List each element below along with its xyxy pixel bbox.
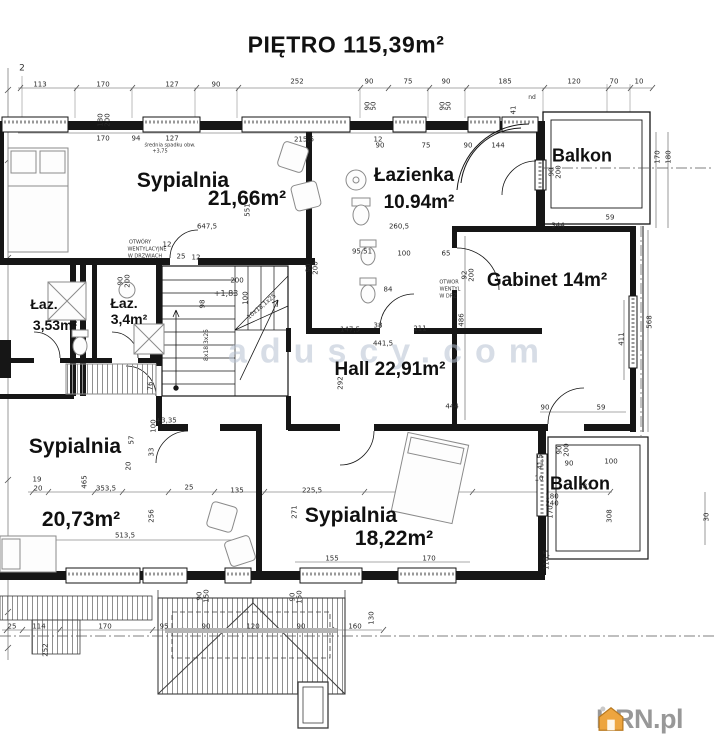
- annotation-label-0: 2: [19, 65, 25, 74]
- dimension-label-9: 120: [567, 79, 580, 86]
- dimension-label-67: 33: [149, 448, 156, 457]
- dimension-label-71: 465: [82, 475, 89, 488]
- bidet: [360, 278, 376, 303]
- toilet: [352, 198, 370, 225]
- annotation-label-8: OTWOR: [439, 281, 458, 286]
- dimension-label-107: 252: [43, 643, 50, 656]
- dimension-label-14: 127: [165, 136, 178, 143]
- dimension-label-62: 444: [445, 404, 458, 411]
- dimension-label-10: 70: [610, 79, 619, 86]
- dimension-label-99: 114: [32, 624, 45, 631]
- dimension-label-75: 225,5: [302, 488, 322, 495]
- dimension-label-72: 353,5: [96, 486, 116, 493]
- dimension-label-41: 12: [192, 255, 201, 262]
- dimension-label-76: 381: [578, 484, 591, 491]
- dimension-label-35: 411: [619, 332, 626, 345]
- dimension-label-80: 90: [565, 461, 574, 468]
- dimension-label-15: 215,5: [294, 137, 314, 144]
- room-label-laz-1-area: 3,53m²: [33, 317, 77, 333]
- annotation-label-5: W DRZWIACH: [128, 255, 162, 260]
- dimension-label-98: 25: [8, 624, 17, 631]
- annotation-label-3: OTWÓRY: [129, 241, 151, 246]
- dimension-label-74: 135: [230, 488, 243, 495]
- dimension-label-68: 20: [126, 462, 133, 471]
- dimension-label-17: 90: [376, 143, 385, 150]
- dimension-label-102: 90: [202, 624, 211, 631]
- dimension-label-106: 130: [369, 611, 376, 624]
- dimension-label-4: 252: [290, 79, 303, 86]
- dimension-label-40: 25: [177, 254, 186, 261]
- dimension-label-2: 127: [165, 82, 178, 89]
- toilet: [72, 330, 88, 355]
- dimension-label-49: 95.51: [352, 249, 372, 256]
- dimension-label-104: 90: [297, 624, 306, 631]
- window: [143, 568, 187, 583]
- room-label-hall: Hall 22,91m²: [335, 359, 446, 381]
- dimension-label-70: 20: [34, 486, 43, 493]
- dimension-label-54: 84: [384, 287, 393, 294]
- dimension-label-5: 90: [365, 79, 374, 86]
- annotation-label-2: +3,75: [152, 150, 167, 155]
- room-label-lazienka: Łazienka: [374, 165, 454, 187]
- room-label-sypialnia-2: Sypialnia: [29, 435, 121, 459]
- dimension-label-51: 65: [442, 251, 451, 258]
- stairwell: [162, 266, 288, 396]
- dimension-label-90: 513,5: [115, 533, 135, 540]
- dimension-label-82: 10: [535, 476, 544, 483]
- dimension-label-36: 486: [459, 313, 466, 326]
- dimension-label-32: 344: [551, 223, 564, 230]
- armchair: [206, 501, 238, 533]
- room-label-balkon-1: Balkon: [552, 146, 612, 167]
- room-label-sypialnia-3: Sypialnia: [305, 504, 397, 528]
- dimension-label-55: 38: [374, 323, 383, 330]
- window: [2, 117, 68, 132]
- dimension-label-28: 170: [655, 150, 662, 163]
- dimension-label-22: 200: [105, 113, 112, 126]
- dimension-label-92: 170: [422, 556, 435, 563]
- window: [300, 568, 362, 583]
- dimension-label-38: 551: [245, 203, 252, 216]
- dimension-label-0: 113: [33, 82, 46, 89]
- room-label-laz-1: Łaz.: [30, 296, 57, 312]
- floorplan-canvas: aduscy.com PIĘTRO 115,39m² Sypialnia21,6…: [0, 0, 717, 750]
- krn-logo: KRN.pl: [596, 704, 683, 735]
- window: [143, 117, 200, 132]
- dimension-label-66: 57: [129, 436, 136, 445]
- dimension-label-61: 292: [338, 376, 345, 389]
- dimension-label-78: 271: [292, 505, 299, 518]
- room-label-gabinet: Gabinet 14m²: [487, 270, 607, 292]
- dimension-label-91: 155: [325, 556, 338, 563]
- dimension-label-101: 95: [160, 624, 169, 631]
- dimension-label-81: 100: [604, 459, 617, 466]
- dimension-label-59: 147,5: [340, 327, 360, 334]
- armchair: [224, 535, 257, 568]
- window: [66, 568, 140, 583]
- dimension-label-33: 59: [606, 215, 615, 222]
- dimension-label-100: 170: [98, 624, 111, 631]
- dimension-label-20: 144: [491, 143, 504, 150]
- dimension-label-86: 308: [607, 509, 614, 522]
- dimension-label-63: 90: [541, 405, 550, 412]
- dimension-label-77: 256: [149, 509, 156, 522]
- annotation-label-13: nd: [528, 95, 536, 101]
- dimension-label-6: 75: [404, 79, 413, 86]
- annotation-label-7: +3,35: [155, 418, 176, 425]
- dimension-label-85: 170: [548, 505, 555, 518]
- dimension-label-93: 118,5: [544, 550, 551, 570]
- room-label-laz-2-area: 3,4m²: [111, 311, 148, 327]
- dimension-label-58: 200: [313, 261, 320, 274]
- dimension-label-64: 59: [597, 405, 606, 412]
- dimension-label-79: 41,5: [538, 454, 545, 470]
- dimension-label-37: 647,5: [197, 224, 217, 231]
- dimension-label-18: 75: [422, 143, 431, 150]
- dimension-label-7: 90: [442, 79, 451, 86]
- dimension-label-48: 260,5: [389, 224, 409, 231]
- dimension-label-3: 90: [212, 82, 221, 89]
- dimension-label-46: 200: [125, 274, 132, 287]
- dimension-label-26: 50: [446, 102, 453, 111]
- dimension-label-97: 150: [297, 590, 304, 603]
- centerlines: [0, 168, 714, 636]
- dimension-label-34: 568: [647, 315, 654, 328]
- window: [242, 117, 350, 132]
- annotation-label-9: WENTYL: [440, 288, 461, 293]
- dimension-label-95: 150: [204, 589, 211, 602]
- roof-plan: [0, 590, 345, 728]
- dimension-label-1: 170: [96, 82, 109, 89]
- annotation-label-6: +1,83: [214, 290, 239, 298]
- dimension-label-56: 211: [413, 326, 426, 333]
- dimension-label-13: 170: [96, 136, 109, 143]
- dimension-label-29: 180: [666, 150, 673, 163]
- stairs-arrow: [173, 300, 278, 386]
- window: [398, 568, 456, 583]
- bed: [8, 148, 68, 252]
- dimension-label-12: 94: [132, 136, 141, 143]
- dimension-label-60: 441,5: [373, 341, 393, 348]
- dimension-label-53: 200: [469, 268, 476, 281]
- plan-title: PIĘTRO 115,39m²: [248, 32, 445, 59]
- armchair: [290, 180, 322, 212]
- dimension-label-43: 100: [243, 291, 250, 304]
- dimension-label-44: 98: [200, 300, 207, 309]
- room-label-lazienka-area: 10.94m²: [384, 192, 455, 214]
- shower: [134, 324, 164, 354]
- window: [629, 296, 637, 368]
- dimension-label-103: 120: [246, 624, 259, 631]
- bed: [391, 432, 468, 523]
- window: [225, 568, 251, 583]
- bed: [0, 536, 56, 572]
- dimension-label-69: 19: [33, 477, 42, 484]
- window: [393, 117, 426, 132]
- corner-bathtub: [457, 124, 529, 190]
- dimension-label-11: 10: [635, 79, 644, 86]
- armchair: [277, 141, 310, 174]
- dimension-label-73: 25: [185, 485, 194, 492]
- dimension-label-89: 200: [564, 443, 571, 456]
- balcony-door-window: [535, 160, 546, 190]
- dimension-label-24: 50: [371, 102, 378, 111]
- house-icon: [596, 704, 626, 734]
- dimension-label-42: 200: [230, 278, 243, 285]
- dimension-label-27: 41: [511, 106, 518, 115]
- dimension-label-50: 100: [397, 251, 410, 258]
- dimension-label-19: 90: [464, 143, 473, 150]
- dimension-label-31: 200: [556, 165, 563, 178]
- wardrobe: [66, 364, 156, 394]
- dimension-label-8: 185: [498, 79, 511, 86]
- room-label-sypialnia-3-area: 18,22m²: [355, 527, 433, 551]
- annotation-label-4: WENTYLACYJNE: [127, 248, 166, 253]
- window: [468, 117, 500, 132]
- dimension-label-47: 76: [148, 382, 155, 391]
- annotation-label-12: 8x18,3x25: [204, 329, 210, 361]
- dimension-label-105: 160: [348, 624, 361, 631]
- room-label-laz-2: Łaz.: [110, 295, 137, 311]
- dimension-label-87: 30: [704, 513, 711, 522]
- annotation-label-10: W DRZ: [439, 295, 456, 300]
- room-label-sypialnia-2-area: 20,73m²: [42, 508, 120, 532]
- sink: [346, 170, 366, 190]
